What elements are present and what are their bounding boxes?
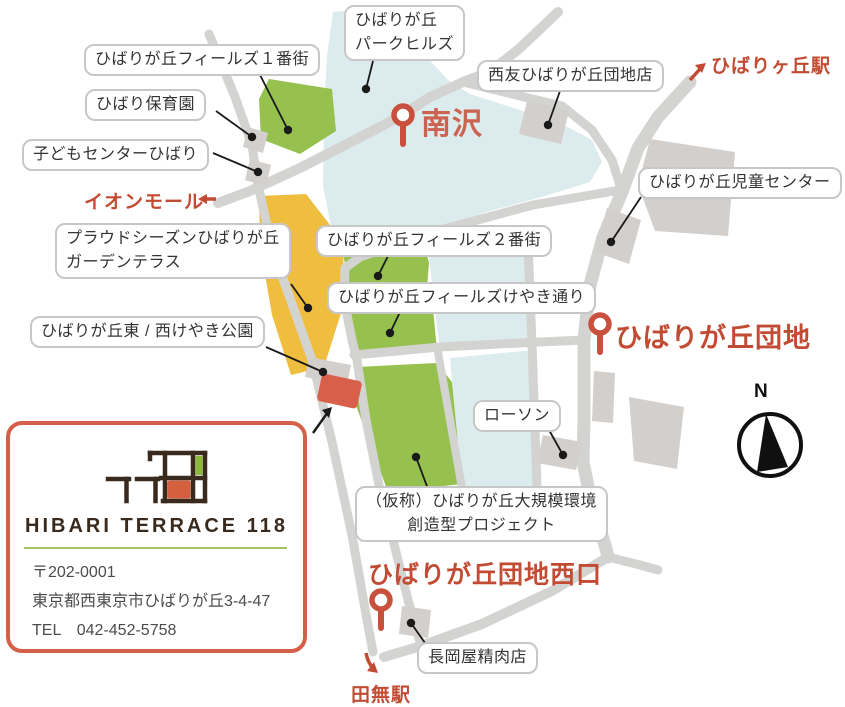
street-address: 東京都西東京市ひばりが丘3-4-47 xyxy=(32,588,303,617)
logo-orange-pane xyxy=(167,481,190,499)
brand-title: HIBARI TERRACE 118 xyxy=(10,515,303,538)
postal-code: 〒202-0001 xyxy=(32,559,303,588)
compass-rose-icon xyxy=(739,414,801,476)
compass-north-label: N xyxy=(754,381,768,403)
hibari-terrace-118-logo-icon xyxy=(99,441,215,505)
info-card: HIBARI TERRACE 118 〒202-0001 東京都西東京市ひばりが… xyxy=(6,421,307,653)
label-bubble-project: （仮称）ひばりが丘大規模環境 創造型プロジェクト xyxy=(355,486,608,542)
phone-number: TEL 042-452-5758 xyxy=(32,617,303,646)
danchi-west-pin-icon xyxy=(372,591,390,628)
label-bubble-parkhills: ひばりが丘 パークヒルズ xyxy=(344,5,465,61)
label-hibarigaoka-station: ひばりヶ丘駅 xyxy=(711,51,831,78)
building-east-small-2 xyxy=(629,397,684,469)
label-bubble-fields1: ひばりが丘フィールズ１番街 xyxy=(84,44,320,76)
label-bubble-jido: ひばりが丘児童センター xyxy=(638,167,842,199)
building-east-small-1 xyxy=(592,371,615,423)
danchi-pin-icon xyxy=(591,315,609,352)
building-lawson xyxy=(537,435,582,470)
access-map: ひばりが丘フィールズ１番街 ひばり保育園 子どもセンターひばり ひばりが丘 パー… xyxy=(0,0,845,707)
label-tanashi-station: 田無駅 xyxy=(351,680,411,707)
label-bubble-nagaoka: 長岡屋精肉店 xyxy=(417,642,538,674)
label-bubble-fields2: ひばりが丘フィールズ２番街 xyxy=(316,225,552,257)
logo-green-pane xyxy=(195,456,202,475)
road-southeast-stub xyxy=(608,557,658,570)
label-bubble-seiyu: 西友ひばりが丘団地店 xyxy=(477,60,664,92)
label-danchi-west: ひばりが丘団地西口 xyxy=(368,555,602,591)
label-bubble-lawson: ローソン xyxy=(473,400,561,432)
label-bubble-kodomo: 子どもセンターひばり xyxy=(22,139,209,171)
station-arrow-ne-icon xyxy=(690,63,706,80)
address-block: 〒202-0001 東京都西東京市ひばりが丘3-4-47 TEL 042-452… xyxy=(32,559,303,645)
label-bubble-keyaki-park: ひばりが丘東 / 西けやき公園 xyxy=(30,316,265,348)
label-bubble-hoikuen: ひばり保育園 xyxy=(85,89,206,121)
label-bubble-proud: プラウドシーズンひばりが丘 ガーデンテラス xyxy=(55,223,291,279)
brand-separator xyxy=(24,547,287,549)
label-minamisawa: 南沢 xyxy=(421,99,483,143)
label-danchi: ひばりが丘団地 xyxy=(615,316,811,355)
label-bubble-keyaki-street: ひばりが丘フィールズけやき通り xyxy=(327,282,596,314)
label-aeon-mall: イオンモール xyxy=(84,187,204,214)
